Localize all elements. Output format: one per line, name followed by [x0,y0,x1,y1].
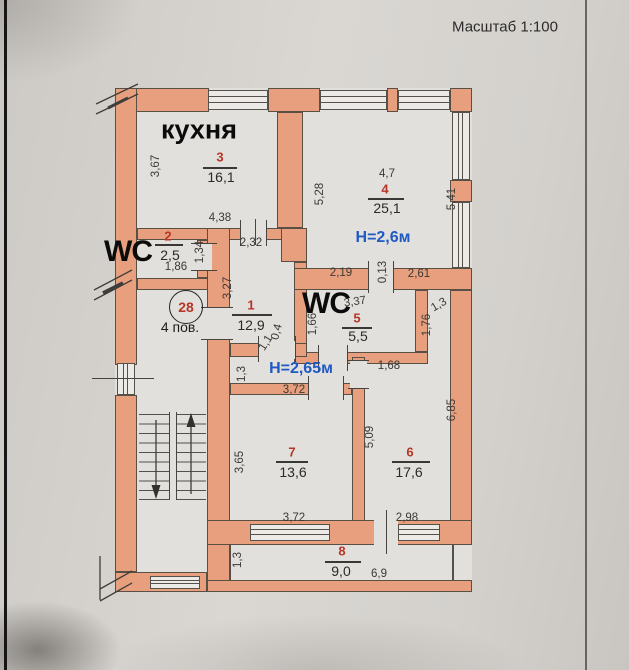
room-1-area: 12,9 [237,317,264,333]
dimension-label: 3,72 [283,384,305,396]
room-5-number: 5 [353,311,360,326]
wc-left-label: WC [104,235,152,269]
room-7-number: 7 [288,445,295,460]
room-4-number: 4 [381,182,388,197]
room-8-number: 8 [338,544,345,559]
floor-plan-photo: Масштаб 1:100 [0,0,629,670]
kitchen-label: кухня [161,115,237,146]
room-1-underline [232,314,272,316]
ceiling-height-hallway: Н=2,65м [269,360,333,378]
dimension-label: 1,86 [165,261,187,273]
dimension-label: 4,7 [379,168,395,180]
dimension-label: 1,3 [236,366,248,382]
dimension-label: 3,67 [150,155,162,177]
room-3-area: 16,1 [207,169,234,185]
room-5-area: 5,5 [348,328,367,344]
room-2-number: 2 [164,229,171,244]
dimension-label: 2,19 [330,267,352,279]
room-4-area: 25,1 [373,200,400,216]
dimension-label: 2,32 [240,237,262,249]
room-7-underline [276,461,308,463]
room-6-number: 6 [406,445,413,460]
dimension-label: 3,65 [234,451,246,473]
dimension-label: 1,66 [307,313,319,335]
room-6-underline [392,461,430,463]
dimension-label: 5,28 [314,183,326,205]
dimension-label: 1,3 [232,552,244,568]
room-7-area: 13,6 [279,464,306,480]
dimension-label: 0,13 [377,261,389,283]
floor-label: 4 пов. [161,319,199,335]
dimension-label: 6,9 [371,568,387,580]
dimension-label: 5,41 [446,188,458,210]
dimension-label: 3,27 [222,277,234,299]
dimension-label: 3,72 [283,512,305,524]
dimension-label: 1,76 [421,314,433,336]
room-1-number: 1 [247,298,254,313]
ceiling-height-room4: Н=2,6м [356,229,411,247]
dimension-label: 4,38 [209,212,231,224]
dimension-label: 2,61 [408,268,430,280]
dimension-label: 5,09 [364,426,376,448]
room-3-number: 3 [216,150,223,165]
dimension-label: 1,34 [194,241,206,263]
room-2-underline [155,244,183,246]
dimension-label: 1,68 [378,360,400,372]
room-6-area: 17,6 [395,464,422,480]
dimension-label: 2,98 [396,512,418,524]
dimension-label: 6,85 [446,399,458,421]
room-8-area: 9,0 [331,563,350,579]
